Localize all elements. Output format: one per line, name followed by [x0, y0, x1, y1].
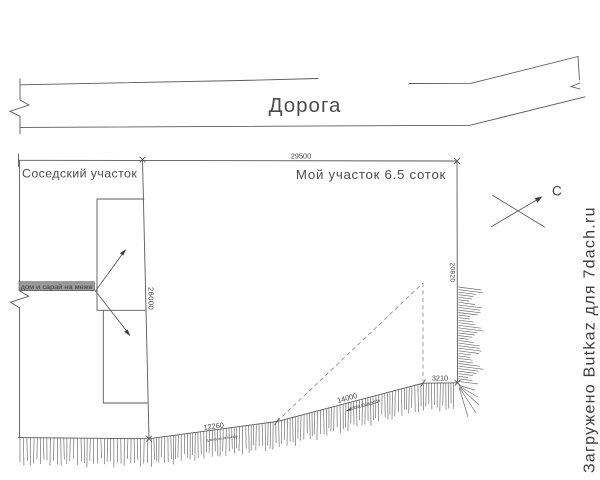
svg-text:Загружено Butkaz для 7dach.ru: Загружено Butkaz для 7dach.ru	[582, 206, 599, 473]
svg-text:26000: 26000	[147, 287, 156, 310]
svg-text:Дорога: Дорога	[269, 94, 342, 117]
svg-text:Соседский участок: Соседский участок	[22, 167, 137, 181]
svg-text:20820: 20820	[449, 263, 456, 283]
svg-text:Мой участок 6.5 соток: Мой участок 6.5 соток	[296, 167, 446, 182]
svg-text:3210: 3210	[432, 374, 448, 383]
svg-text:29500: 29500	[291, 151, 311, 160]
svg-text:С: С	[552, 184, 562, 199]
svg-text:дом и сарай на меже: дом и сарай на меже	[21, 283, 93, 291]
